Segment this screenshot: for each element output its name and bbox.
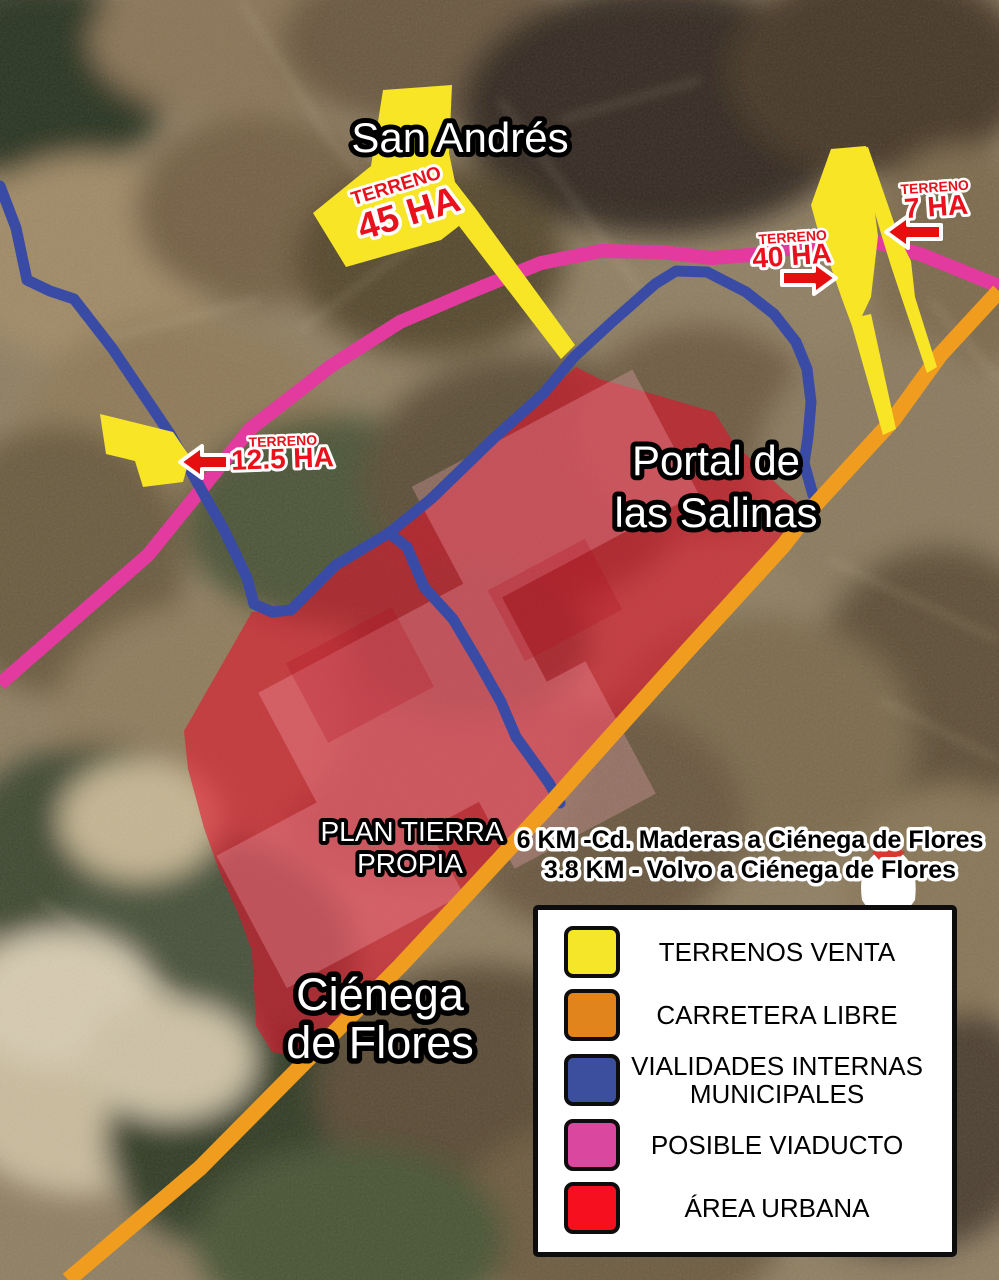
label-plan-line1: PLAN TIERRA: [320, 816, 503, 847]
terrenos-venta-swatch-icon: [564, 926, 620, 978]
legend-label: ÁREA URBANA: [620, 1194, 942, 1222]
map-canvas: TERRENO 45 HA TERRENO 7 HA TERRENO 40 HA…: [0, 0, 999, 1280]
parcel-7ha-area: 7 HA: [903, 189, 969, 224]
parcel-label-7ha: TERRENO 7 HA: [900, 177, 971, 225]
legend-label: POSIBLE VIADUCTO: [620, 1131, 942, 1159]
distance-note-line1: 6 KM -Cd. Maderas a Ciénega de Flores: [517, 826, 984, 854]
legend-label: TERRENOS VENTA: [620, 938, 942, 966]
legend-label: CARRETERA LIBRE: [620, 1001, 942, 1029]
label-cienega-line1: Ciénega: [296, 969, 465, 1020]
parcel-12-5ha-area: 12.5 HA: [231, 441, 335, 476]
vialidades-swatch-icon: [564, 1054, 620, 1106]
posible-viaducto-swatch-icon: [564, 1119, 620, 1171]
label-portal-line1: Portal de: [632, 437, 800, 484]
legend-row-posible-viaducto: POSIBLE VIADUCTO: [548, 1119, 942, 1171]
legend-label: VIALIDADES INTERNAS MUNICIPALES: [620, 1052, 942, 1108]
legend-row-vialidades: VIALIDADES INTERNAS MUNICIPALES: [548, 1052, 942, 1108]
legend-panel: TERRENOS VENTA CARRETERA LIBRE VIALIDADE…: [533, 905, 957, 1257]
legend-row-area-urbana: ÁREA URBANA: [548, 1182, 942, 1234]
carretera-libre-swatch-icon: [564, 989, 620, 1041]
parcel-40ha-area: 40 HA: [751, 237, 832, 273]
label-cienega-line2: de Flores: [286, 1017, 474, 1068]
legend-row-terrenos-venta: TERRENOS VENTA: [548, 926, 942, 978]
label-plan-line2: PROPIA: [357, 848, 463, 879]
legend-row-carretera-libre: CARRETERA LIBRE: [548, 989, 942, 1041]
label-portal-line2: las Salinas: [614, 489, 817, 536]
distance-note-line2: 3.8 KM - Volvo a Ciénega de Flores: [544, 856, 956, 884]
label-san-andres: San Andrés: [351, 114, 568, 161]
parcel-label-40ha: TERRENO 40 HA: [751, 226, 833, 273]
area-urbana-swatch-icon: [564, 1182, 620, 1234]
